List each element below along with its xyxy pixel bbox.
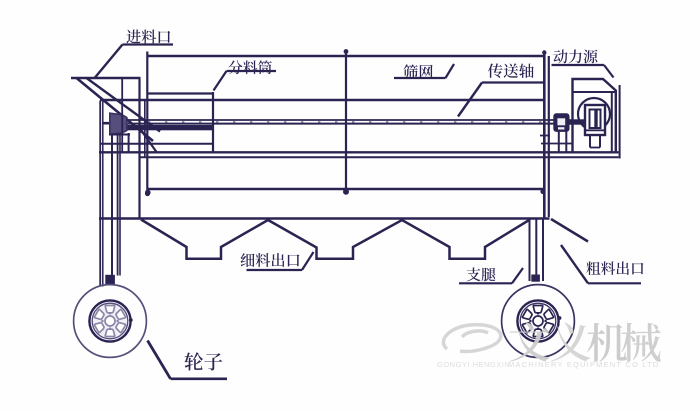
svg-text:MACHINERY EQUIPMENT CO LTD: MACHINERY EQUIPMENT CO LTD [508, 360, 660, 369]
svg-text:GONGYI HENGXIN: GONGYI HENGXIN [437, 360, 510, 369]
